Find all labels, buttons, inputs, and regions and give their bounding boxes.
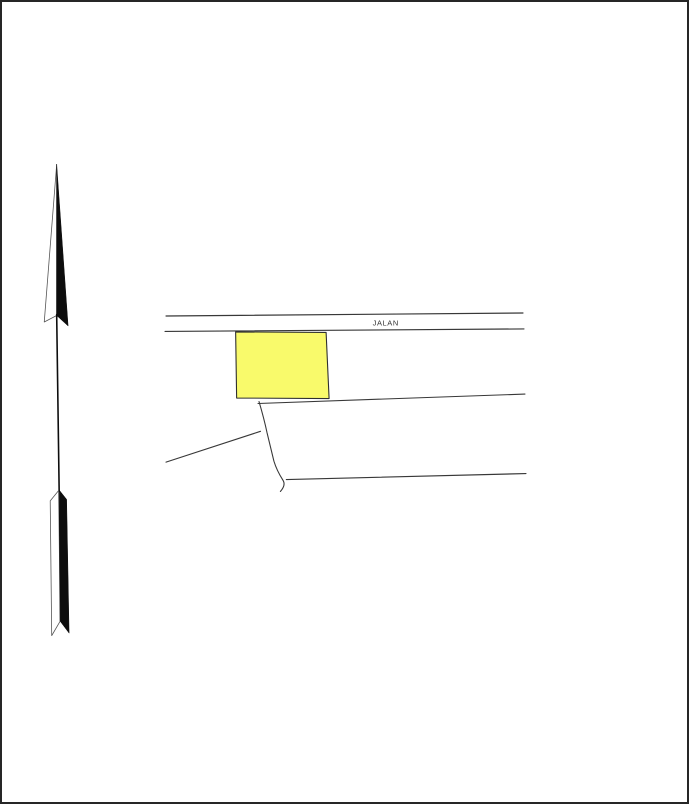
road-edge-north (166, 313, 523, 316)
north-arrow-tail-right-half (59, 490, 69, 633)
boundary-path-creek (259, 402, 284, 492)
north-arrow-head-left-half (44, 164, 56, 322)
north-arrow-tail-left-half (50, 490, 60, 635)
site-plan-page: JALAN (0, 0, 689, 804)
site-map-svg: JALAN (2, 2, 687, 802)
boundary-line-south (286, 474, 526, 480)
north-arrow-head-right-half (57, 164, 68, 326)
road-name-label: JALAN (373, 318, 399, 327)
highlighted-parcel (236, 332, 329, 399)
boundary-line-southwest (166, 431, 260, 462)
road-edge-south (165, 329, 524, 331)
north-arrow-shaft (57, 315, 59, 492)
